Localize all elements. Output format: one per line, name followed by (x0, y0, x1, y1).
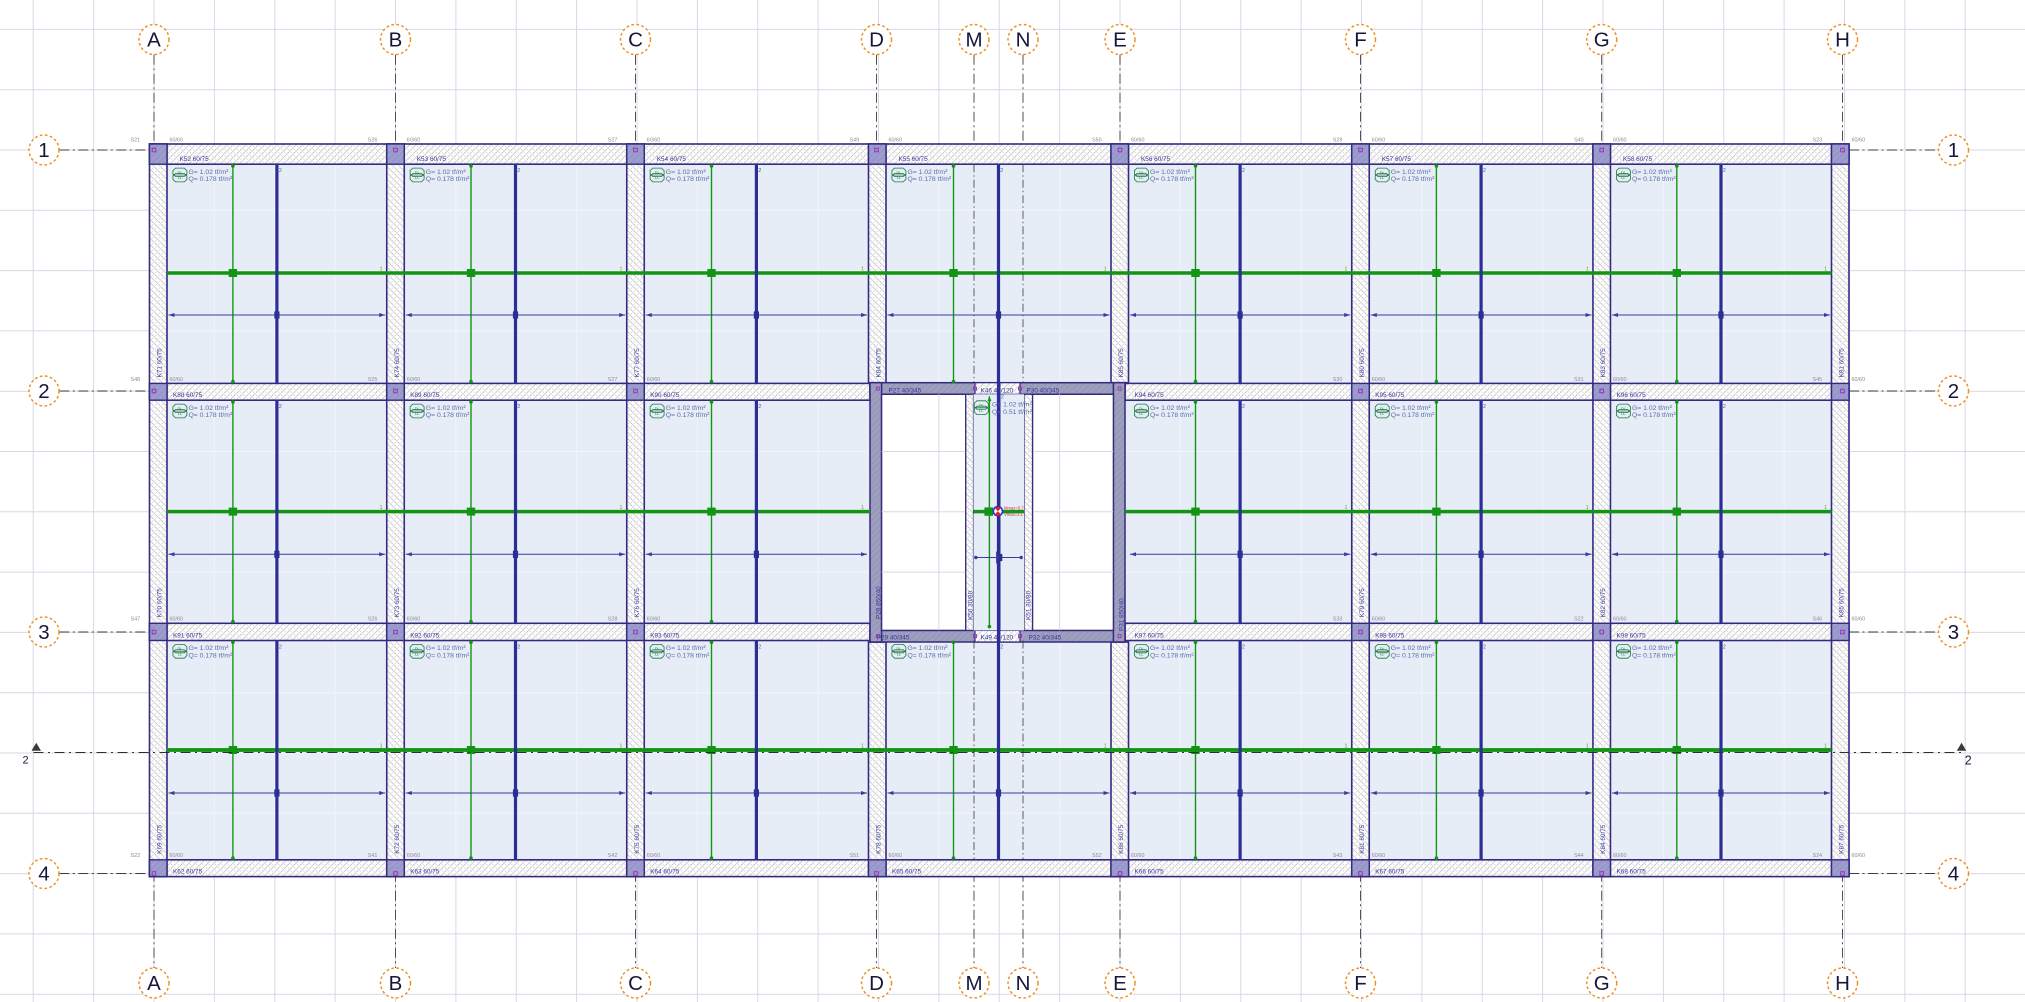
svg-text:LL: LL (1139, 653, 1143, 657)
svg-text:S42: S42 (608, 853, 618, 859)
svg-text:P30 40/345: P30 40/345 (1027, 388, 1060, 395)
svg-text:K78 60/75: K78 60/75 (876, 824, 883, 854)
svg-text:2: 2 (758, 404, 761, 410)
svg-text:2: 2 (1723, 645, 1726, 651)
svg-text:1: 1 (861, 505, 864, 511)
svg-text:K87 60/75: K87 60/75 (1839, 824, 1846, 854)
svg-text:K70 60/75: K70 60/75 (157, 588, 164, 618)
svg-text:Q= 0.178 tf/m²: Q= 0.178 tf/m² (1150, 412, 1194, 419)
svg-text:60/60: 60/60 (170, 377, 184, 383)
svg-text:K95 60/75: K95 60/75 (1375, 392, 1405, 399)
svg-text:K76 60/75: K76 60/75 (634, 588, 641, 618)
svg-text:4: 4 (38, 863, 49, 886)
svg-text:Q= 0.178 tf/m²: Q= 0.178 tf/m² (1391, 653, 1435, 660)
svg-text:60/60: 60/60 (647, 853, 661, 859)
svg-text:60/60: 60/60 (889, 137, 903, 143)
svg-text:LL: LL (415, 653, 419, 657)
svg-text:S49: S49 (850, 137, 860, 143)
svg-text:G= 1.02 tf/m²: G= 1.02 tf/m² (426, 169, 467, 176)
svg-text:DL: DL (1139, 171, 1144, 175)
svg-text:1: 1 (620, 505, 623, 511)
svg-text:K55 60/75: K55 60/75 (899, 156, 929, 163)
svg-text:S40: S40 (1574, 137, 1584, 143)
svg-text:S47: S47 (131, 617, 141, 623)
svg-text:60/60: 60/60 (407, 137, 421, 143)
svg-text:3: 3 (38, 621, 49, 644)
svg-text:P29 40/345: P29 40/345 (877, 634, 910, 641)
svg-text:K81 60/75: K81 60/75 (1839, 348, 1846, 378)
svg-text:60/60: 60/60 (889, 853, 903, 859)
svg-text:2: 2 (1948, 380, 1959, 403)
svg-text:K77 60/75: K77 60/75 (634, 348, 641, 378)
svg-text:K71 60/75: K71 60/75 (157, 348, 164, 378)
svg-text:N: N (1016, 29, 1031, 52)
svg-text:1: 1 (620, 266, 623, 272)
svg-text:S25: S25 (368, 377, 378, 383)
svg-text:1: 1 (1345, 743, 1348, 749)
svg-text:LL: LL (415, 176, 419, 180)
svg-text:S51: S51 (850, 853, 860, 859)
svg-text:DL: DL (979, 404, 984, 408)
svg-text:K72 60/75: K72 60/75 (394, 824, 401, 854)
svg-text:2: 2 (1723, 404, 1726, 410)
svg-text:4: 4 (1948, 863, 1959, 886)
svg-text:2: 2 (279, 645, 282, 651)
svg-text:DL: DL (415, 647, 420, 651)
svg-text:60/60: 60/60 (1372, 853, 1386, 859)
svg-text:S48: S48 (131, 377, 141, 383)
svg-text:K67 60/75: K67 60/75 (1375, 868, 1405, 875)
svg-text:60/60: 60/60 (170, 617, 184, 623)
svg-text:DL: DL (177, 407, 182, 411)
svg-text:N: N (1016, 972, 1031, 995)
svg-text:1: 1 (1824, 505, 1827, 511)
svg-text:Q= 0.178 tf/m²: Q= 0.178 tf/m² (908, 176, 952, 183)
svg-text:D: D (869, 29, 884, 52)
svg-text:G= 1.02 tf/m²: G= 1.02 tf/m² (908, 645, 949, 652)
svg-text:Q= 0.178 tf/m²: Q= 0.178 tf/m² (189, 412, 233, 419)
svg-text:K65 60/75: K65 60/75 (892, 868, 922, 875)
svg-text:2: 2 (23, 755, 29, 767)
svg-text:Vmax=3.1: Vmax=3.1 (1004, 512, 1024, 517)
svg-text:G= 1.02 tf/m²: G= 1.02 tf/m² (666, 405, 707, 412)
svg-text:LL: LL (1380, 653, 1384, 657)
svg-text:S23: S23 (1813, 137, 1823, 143)
svg-text:Q= 0.178 tf/m²: Q= 0.178 tf/m² (666, 176, 710, 183)
svg-text:K56 60/75: K56 60/75 (1141, 156, 1171, 163)
svg-text:G= 1.02 tf/m²: G= 1.02 tf/m² (1632, 645, 1673, 652)
svg-text:DL: DL (1621, 647, 1626, 651)
svg-text:1: 1 (861, 266, 864, 272)
svg-text:2: 2 (758, 645, 761, 651)
svg-text:DL: DL (1380, 171, 1385, 175)
svg-text:Q= 0.178 tf/m²: Q= 0.178 tf/m² (426, 653, 470, 660)
svg-text:DL: DL (177, 171, 182, 175)
svg-text:Q= 0.178 tf/m²: Q= 0.178 tf/m² (666, 653, 710, 660)
svg-text:1: 1 (1586, 743, 1589, 749)
svg-text:60/60: 60/60 (1852, 617, 1866, 623)
svg-text:1: 1 (380, 505, 383, 511)
svg-text:A: A (147, 972, 161, 995)
svg-text:60/60: 60/60 (1613, 853, 1627, 859)
svg-text:Q= 0.178 tf/m²: Q= 0.178 tf/m² (1632, 412, 1676, 419)
svg-text:60/60: 60/60 (407, 853, 421, 859)
svg-text:60/60: 60/60 (1852, 377, 1866, 383)
svg-text:K84 60/75: K84 60/75 (876, 348, 883, 378)
svg-text:K51 30/80: K51 30/80 (1025, 590, 1032, 620)
svg-text:G= 1.02 tf/m²: G= 1.02 tf/m² (1150, 169, 1191, 176)
svg-text:DL: DL (896, 647, 901, 651)
svg-text:K53 60/75: K53 60/75 (417, 156, 447, 163)
svg-text:2: 2 (1483, 168, 1486, 174)
svg-text:K94 60/75: K94 60/75 (1135, 392, 1165, 399)
svg-text:K84 60/75: K84 60/75 (1600, 824, 1607, 854)
svg-text:K54 60/75: K54 60/75 (657, 156, 687, 163)
svg-text:K85 60/75: K85 60/75 (1118, 348, 1125, 378)
svg-text:G: G (1594, 29, 1610, 52)
svg-text:M: M (965, 29, 982, 52)
svg-text:K93 60/75: K93 60/75 (650, 632, 680, 639)
svg-text:G= 1.02 tf/m²: G= 1.02 tf/m² (1150, 645, 1191, 652)
svg-text:G= 1.02 tf/m²: G= 1.02 tf/m² (1391, 645, 1432, 652)
svg-text:S31: S31 (1574, 377, 1584, 383)
svg-text:60/60: 60/60 (1131, 853, 1145, 859)
svg-text:Q= 0.178 tf/m²: Q= 0.178 tf/m² (189, 653, 233, 660)
svg-text:K99 60/75: K99 60/75 (1617, 632, 1647, 639)
svg-text:60/60: 60/60 (1852, 137, 1866, 143)
svg-text:DL: DL (415, 171, 420, 175)
svg-text:Q= 0.178 tf/m²: Q= 0.178 tf/m² (1150, 653, 1194, 660)
svg-text:S33: S33 (1333, 617, 1343, 623)
svg-text:K83 60/75: K83 60/75 (1600, 348, 1607, 378)
svg-text:P32 40/345: P32 40/345 (1029, 634, 1062, 641)
svg-text:B: B (389, 972, 403, 995)
svg-text:60/60: 60/60 (1852, 853, 1866, 859)
svg-text:K92 60/75: K92 60/75 (410, 632, 440, 639)
svg-text:S44: S44 (1574, 853, 1584, 859)
svg-text:LL: LL (1139, 176, 1143, 180)
svg-text:C: C (628, 972, 643, 995)
svg-text:2: 2 (38, 380, 49, 403)
svg-text:C: C (628, 29, 643, 52)
svg-text:P31 850/40: P31 850/40 (1118, 598, 1125, 631)
svg-text:1: 1 (38, 139, 49, 162)
svg-text:LL: LL (1139, 412, 1143, 416)
svg-text:K89 60/75: K89 60/75 (410, 392, 440, 399)
svg-text:LL: LL (979, 409, 983, 413)
svg-text:K96 60/75: K96 60/75 (1617, 392, 1647, 399)
svg-text:2: 2 (1965, 754, 1972, 768)
svg-text:K46 40/120: K46 40/120 (981, 388, 1014, 395)
svg-text:S27: S27 (608, 377, 618, 383)
svg-text:1: 1 (1586, 505, 1589, 511)
svg-text:G: G (1594, 972, 1610, 995)
svg-text:S26: S26 (368, 137, 378, 143)
svg-text:G= 1.02 tf/m²: G= 1.02 tf/m² (1632, 405, 1673, 412)
svg-text:DL: DL (655, 647, 660, 651)
svg-text:K81 60/75: K81 60/75 (1359, 824, 1366, 854)
svg-text:S45: S45 (1813, 377, 1823, 383)
svg-text:2: 2 (1001, 395, 1004, 401)
svg-text:2: 2 (279, 404, 282, 410)
svg-text:G= 1.02 tf/m²: G= 1.02 tf/m² (189, 645, 230, 652)
svg-text:Q= 0.178 tf/m²: Q= 0.178 tf/m² (1632, 176, 1676, 183)
svg-text:1: 1 (1104, 743, 1107, 749)
svg-text:DL: DL (177, 647, 182, 651)
svg-text:Q= 0.178 tf/m²: Q= 0.178 tf/m² (1632, 653, 1676, 660)
svg-text:S28: S28 (608, 617, 618, 623)
svg-text:F: F (1354, 972, 1367, 995)
svg-text:K86 60/75: K86 60/75 (1118, 824, 1125, 854)
svg-text:2: 2 (1242, 645, 1245, 651)
svg-text:60/60: 60/60 (407, 617, 421, 623)
svg-text:K82 60/75: K82 60/75 (1600, 588, 1607, 618)
svg-text:DL: DL (1139, 407, 1144, 411)
svg-text:K75 60/75: K75 60/75 (634, 824, 641, 854)
svg-text:LL: LL (178, 412, 182, 416)
svg-text:K79 60/75: K79 60/75 (1359, 588, 1366, 618)
svg-text:60/60: 60/60 (647, 137, 661, 143)
svg-text:G= 1.02 tf/m²: G= 1.02 tf/m² (992, 402, 1033, 409)
svg-text:LL: LL (655, 653, 659, 657)
svg-text:Q= 0.178 tf/m²: Q= 0.178 tf/m² (426, 412, 470, 419)
svg-text:LL: LL (1621, 176, 1625, 180)
svg-text:1: 1 (1345, 266, 1348, 272)
svg-text:Q= 0.178 tf/m²: Q= 0.178 tf/m² (666, 412, 710, 419)
svg-text:G= 1.02 tf/m²: G= 1.02 tf/m² (189, 169, 230, 176)
svg-text:Q= 0.178 tf/m²: Q= 0.178 tf/m² (1391, 412, 1435, 419)
svg-text:S46: S46 (1813, 617, 1823, 623)
svg-text:Q= 0.51 tf/m²: Q= 0.51 tf/m² (992, 409, 1033, 416)
svg-text:1: 1 (1104, 266, 1107, 272)
svg-text:LL: LL (415, 412, 419, 416)
svg-text:LL: LL (1621, 412, 1625, 416)
svg-text:S41: S41 (368, 853, 378, 859)
svg-text:1: 1 (1586, 266, 1589, 272)
svg-text:DL: DL (415, 407, 420, 411)
svg-text:DL: DL (1621, 171, 1626, 175)
svg-text:1: 1 (380, 266, 383, 272)
svg-text:60/60: 60/60 (1372, 377, 1386, 383)
svg-text:S22: S22 (131, 853, 141, 859)
svg-text:G= 1.02 tf/m²: G= 1.02 tf/m² (1391, 405, 1432, 412)
svg-text:M: M (965, 972, 982, 995)
svg-text:Q= 0.178 tf/m²: Q= 0.178 tf/m² (426, 176, 470, 183)
svg-text:2: 2 (279, 168, 282, 174)
svg-text:K85 60/75: K85 60/75 (1839, 588, 1846, 618)
svg-text:G= 1.02 tf/m²: G= 1.02 tf/m² (1391, 169, 1432, 176)
svg-text:2: 2 (1000, 645, 1003, 651)
svg-text:G= 1.02 tf/m²: G= 1.02 tf/m² (666, 169, 707, 176)
svg-text:G= 1.02 tf/m²: G= 1.02 tf/m² (426, 645, 467, 652)
svg-text:LL: LL (655, 176, 659, 180)
svg-text:1: 1 (861, 743, 864, 749)
svg-text:S24: S24 (1813, 853, 1823, 859)
svg-text:G= 1.02 tf/m²: G= 1.02 tf/m² (189, 405, 230, 412)
svg-text:60/60: 60/60 (407, 377, 421, 383)
svg-text:Mmax=5.7: Mmax=5.7 (1004, 506, 1024, 511)
svg-text:K68 60/75: K68 60/75 (1617, 868, 1647, 875)
svg-text:60/60: 60/60 (1613, 617, 1627, 623)
svg-text:LL: LL (1380, 176, 1384, 180)
svg-text:LL: LL (178, 176, 182, 180)
svg-text:60/60: 60/60 (1131, 137, 1145, 143)
svg-text:1: 1 (1824, 743, 1827, 749)
svg-text:E: E (1113, 29, 1127, 52)
svg-text:G= 1.02 tf/m²: G= 1.02 tf/m² (426, 405, 467, 412)
svg-text:G= 1.02 tf/m²: G= 1.02 tf/m² (666, 645, 707, 652)
svg-text:LL: LL (655, 412, 659, 416)
svg-text:S29: S29 (1333, 137, 1343, 143)
svg-text:60/60: 60/60 (1613, 137, 1627, 143)
svg-text:S27: S27 (608, 137, 618, 143)
svg-text:K97 60/75: K97 60/75 (1135, 632, 1165, 639)
svg-text:LL: LL (1380, 412, 1384, 416)
svg-text:DL: DL (896, 171, 901, 175)
svg-text:S30: S30 (1333, 377, 1343, 383)
svg-text:P27 40/345: P27 40/345 (889, 388, 922, 395)
svg-text:H: H (1835, 972, 1850, 995)
svg-text:60/60: 60/60 (647, 377, 661, 383)
svg-text:S50: S50 (1092, 137, 1102, 143)
svg-text:2: 2 (1483, 645, 1486, 651)
svg-text:1: 1 (1345, 505, 1348, 511)
svg-text:K62 60/75: K62 60/75 (173, 868, 203, 875)
svg-text:LL: LL (897, 653, 901, 657)
svg-text:D: D (869, 972, 884, 995)
svg-text:2: 2 (517, 404, 520, 410)
svg-text:K57 60/75: K57 60/75 (1382, 156, 1412, 163)
svg-text:2: 2 (758, 168, 761, 174)
svg-text:1: 1 (1824, 266, 1827, 272)
svg-text:K80 60/75: K80 60/75 (1359, 348, 1366, 378)
svg-text:K64 60/75: K64 60/75 (650, 868, 680, 875)
svg-text:Q= 0.178 tf/m²: Q= 0.178 tf/m² (1391, 176, 1435, 183)
svg-text:60/60: 60/60 (170, 853, 184, 859)
svg-text:DL: DL (655, 407, 660, 411)
svg-text:LL: LL (178, 653, 182, 657)
svg-text:Q= 0.178 tf/m²: Q= 0.178 tf/m² (189, 176, 233, 183)
svg-text:S52: S52 (1092, 853, 1102, 859)
svg-text:60/60: 60/60 (170, 137, 184, 143)
svg-text:K66 60/75: K66 60/75 (1135, 868, 1165, 875)
svg-text:H: H (1835, 29, 1850, 52)
svg-text:K52 60/75: K52 60/75 (180, 156, 210, 163)
svg-text:2: 2 (1000, 168, 1003, 174)
svg-text:S21: S21 (131, 137, 141, 143)
svg-text:K49 40/120: K49 40/120 (981, 634, 1014, 641)
svg-text:G= 1.02 tf/m²: G= 1.02 tf/m² (1632, 169, 1673, 176)
svg-text:2: 2 (1483, 404, 1486, 410)
svg-text:K74 60/75: K74 60/75 (394, 348, 401, 378)
svg-text:1: 1 (620, 743, 623, 749)
svg-text:K63 60/75: K63 60/75 (410, 868, 440, 875)
svg-text:DL: DL (1380, 407, 1385, 411)
svg-text:A: A (147, 29, 161, 52)
svg-text:60/60: 60/60 (1613, 377, 1627, 383)
svg-text:G= 1.02 tf/m²: G= 1.02 tf/m² (1150, 405, 1191, 412)
svg-text:1: 1 (380, 743, 383, 749)
svg-text:K90 60/75: K90 60/75 (650, 392, 680, 399)
svg-text:60/60: 60/60 (1372, 137, 1386, 143)
svg-text:2: 2 (1242, 168, 1245, 174)
svg-text:K88 60/75: K88 60/75 (173, 392, 203, 399)
svg-text:G= 1.02 tf/m²: G= 1.02 tf/m² (908, 169, 949, 176)
svg-text:60/60: 60/60 (647, 617, 661, 623)
svg-text:K91 60/75: K91 60/75 (173, 632, 203, 639)
svg-text:F: F (1354, 29, 1367, 52)
svg-text:K73 60/75: K73 60/75 (394, 588, 401, 618)
svg-text:Q= 0.178 tf/m²: Q= 0.178 tf/m² (908, 653, 952, 660)
svg-text:P28 850/40: P28 850/40 (875, 586, 882, 619)
svg-text:S26: S26 (368, 617, 378, 623)
svg-text:2: 2 (517, 168, 520, 174)
svg-text:Q= 0.178 tf/m²: Q= 0.178 tf/m² (1150, 176, 1194, 183)
svg-text:3: 3 (1948, 621, 1959, 644)
svg-text:B: B (389, 29, 403, 52)
svg-text:S22: S22 (1574, 617, 1584, 623)
svg-text:60/60: 60/60 (1372, 617, 1386, 623)
svg-text:1: 1 (1948, 139, 1959, 162)
svg-text:DL: DL (655, 171, 660, 175)
svg-text:LL: LL (1621, 653, 1625, 657)
svg-text:2: 2 (1242, 404, 1245, 410)
svg-text:DL: DL (1380, 647, 1385, 651)
svg-text:K69 60/75: K69 60/75 (157, 824, 164, 854)
svg-text:DL: DL (1621, 407, 1626, 411)
svg-text:K98 60/75: K98 60/75 (1375, 632, 1405, 639)
svg-text:E: E (1113, 972, 1127, 995)
svg-text:2: 2 (1723, 168, 1726, 174)
svg-text:S43: S43 (1333, 853, 1343, 859)
svg-text:DL: DL (1139, 647, 1144, 651)
svg-text:K58 60/75: K58 60/75 (1623, 156, 1653, 163)
svg-text:2: 2 (517, 645, 520, 651)
svg-text:K50 30/80: K50 30/80 (967, 590, 974, 620)
svg-text:LL: LL (897, 176, 901, 180)
